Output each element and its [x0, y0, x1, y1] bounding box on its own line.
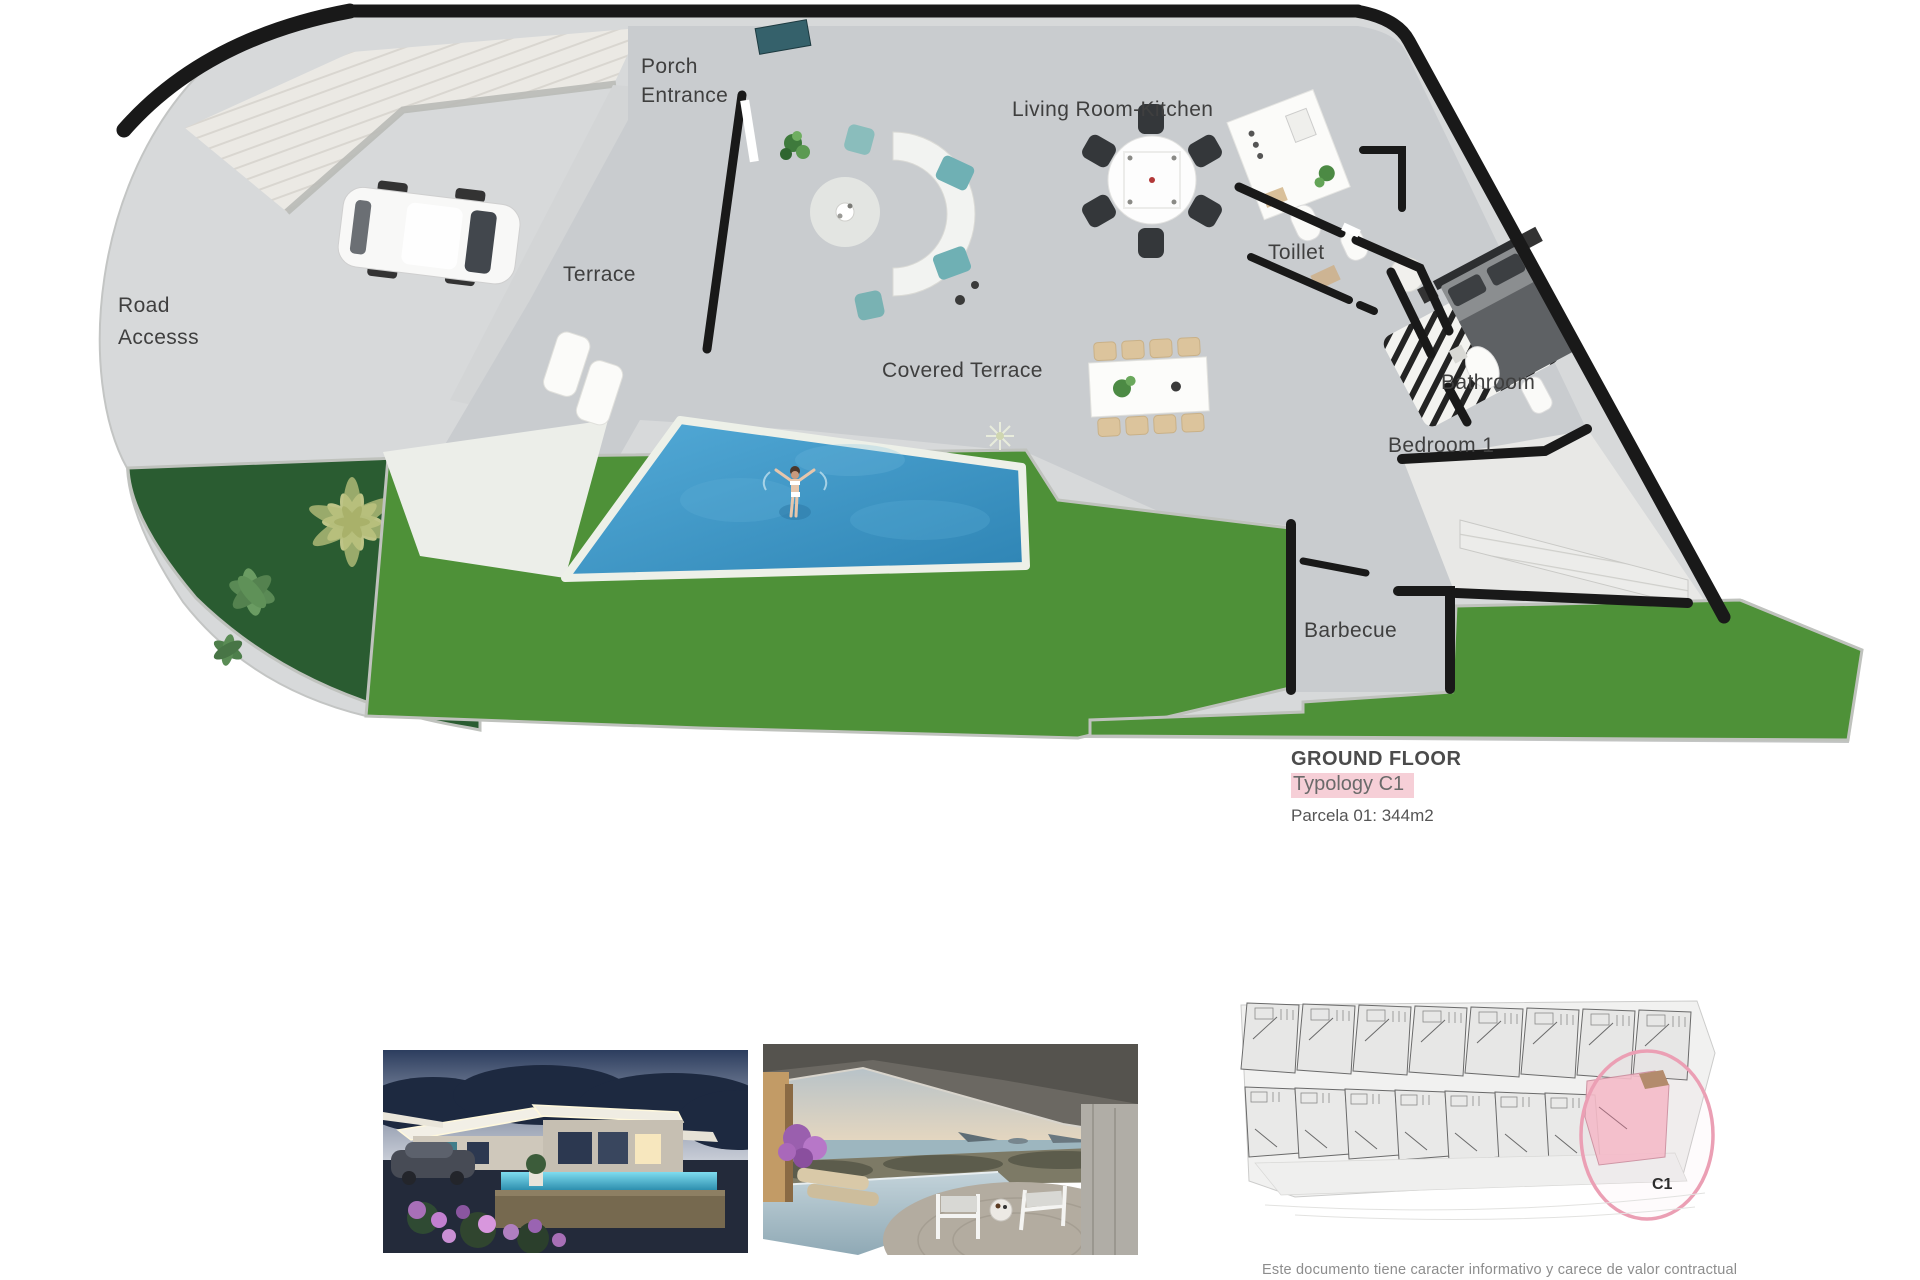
label-bedroom1: Bedroom 1 — [1388, 431, 1494, 460]
pillar — [1081, 1104, 1138, 1255]
floor-plan — [0, 0, 1920, 830]
photo-villa-night-art — [383, 1050, 748, 1253]
side-table — [990, 1199, 1012, 1221]
disclaimer-text: Este documento tiene caracter informativ… — [1262, 1262, 1737, 1278]
page: Porch Entrance Living Room-Kitchen Terra… — [0, 0, 1920, 1280]
star-plant — [986, 422, 1014, 450]
label-road-access: Road Accesss — [118, 290, 199, 354]
photo-villa-night — [383, 1050, 748, 1253]
label-porch-entrance: Porch Entrance — [641, 52, 728, 110]
label-living-room-kitchen: Living Room-Kitchen — [1012, 95, 1213, 124]
highlight-circle — [1581, 1051, 1713, 1219]
title-block: GROUND FLOOR Typology C1 Parcela 01: 344… — [1291, 748, 1461, 826]
parcel-size: Parcela 01: 344m2 — [1291, 806, 1461, 826]
typology-title: Typology C1 — [1291, 773, 1414, 798]
photo-terrace-view — [763, 1044, 1138, 1255]
bottom-row-units — [1245, 1087, 1600, 1163]
photo-terrace-view-art — [763, 1044, 1138, 1255]
site-plan-unit-label: C1 — [1652, 1176, 1672, 1194]
potted-plant — [526, 1154, 546, 1186]
label-barbecue: Barbecue — [1304, 616, 1397, 645]
label-bathroom: Bathroom — [1441, 368, 1535, 397]
label-toilet: Toillet — [1268, 238, 1325, 267]
site-plan — [1235, 995, 1765, 1230]
label-covered-terrace: Covered Terrace — [882, 356, 1043, 385]
floor-title: GROUND FLOOR — [1291, 748, 1461, 771]
label-terrace: Terrace — [563, 260, 636, 289]
